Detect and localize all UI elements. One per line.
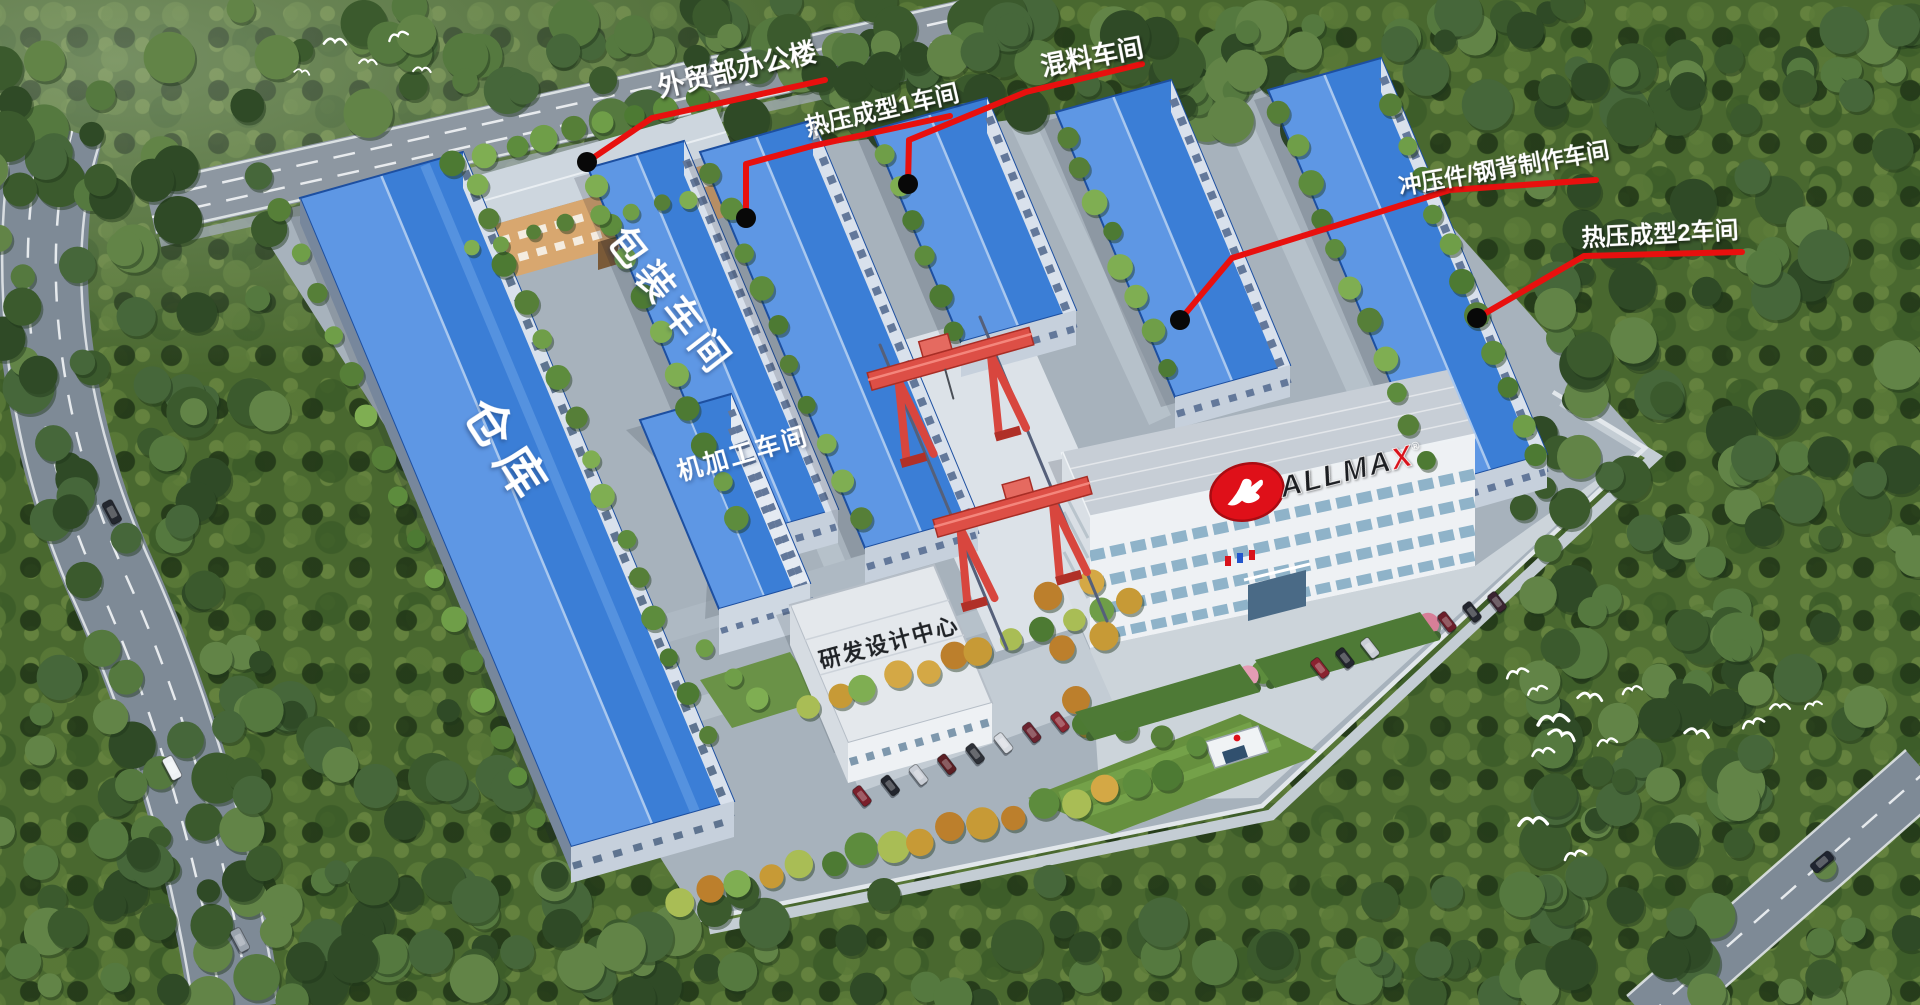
tree [556,214,573,231]
tree [1844,685,1886,727]
tree [822,851,847,876]
tree [107,231,142,266]
tree [1519,660,1560,701]
tree [1069,931,1100,962]
tree [134,366,171,403]
tree [1398,414,1419,435]
tree [723,870,750,897]
tree [425,569,444,588]
tree [1557,435,1601,479]
tree [1423,205,1442,224]
tree [131,159,174,202]
tree [88,819,128,859]
tree [817,434,837,454]
tree [1872,128,1914,170]
tree [618,530,637,549]
tree [1050,911,1078,939]
tree [1730,104,1761,135]
tree [1541,628,1579,666]
tree [493,236,509,252]
tree [86,80,116,110]
tree [1431,876,1463,908]
tree [399,71,428,100]
tree [1091,775,1119,803]
tree [1124,285,1147,308]
tree [623,204,640,221]
callout-dot-mixing [898,174,918,194]
tree [865,51,904,90]
tree [1033,865,1066,898]
callout-dot-hot-press-2 [1467,308,1487,328]
tree [780,355,798,373]
tree [1778,979,1803,1004]
tree [1123,769,1152,798]
tree [1361,882,1399,920]
tree [24,40,65,81]
tree [79,122,104,147]
tree [117,297,156,336]
tree [660,648,678,666]
tree [614,15,653,54]
tree [93,888,126,921]
tree [1533,773,1577,817]
tree [696,639,714,657]
tree [180,398,207,425]
tree [530,125,558,153]
tree [1805,959,1842,996]
tree [769,315,789,335]
tree [590,205,610,225]
tree [1029,788,1060,819]
tree [526,808,546,828]
tree [1325,239,1344,258]
tree [1510,494,1536,520]
tree [1782,70,1817,105]
bird-icon [1578,692,1603,700]
tree [589,66,617,94]
tree [508,767,527,786]
tree [260,915,292,947]
tree [1236,20,1260,44]
bird-icon [1622,685,1642,694]
tree [327,932,378,983]
tree [467,174,489,196]
tree [1571,63,1609,101]
tree [1507,12,1544,49]
tree [167,722,204,759]
tree [492,252,517,277]
tree [1357,308,1382,333]
tree [100,963,130,993]
tree [590,484,614,508]
tree [699,163,720,184]
tree [878,831,910,863]
tree [70,350,95,375]
tree [1151,725,1173,747]
tree [1839,58,1862,81]
tree [1607,98,1656,147]
tree [699,726,717,744]
tree [1256,931,1292,967]
tree [343,88,392,137]
tree [1645,767,1679,801]
tree [514,290,539,315]
tree [1387,383,1407,403]
tree [464,240,480,256]
tree [696,875,724,903]
tree [115,769,147,801]
tree [1049,635,1075,661]
tree [441,606,467,632]
tree [1207,97,1254,144]
tree [246,846,282,882]
tree [596,922,645,971]
tree [1717,779,1759,821]
tree [1063,609,1086,632]
tree [1116,588,1143,615]
callout-dot-hot-press-1 [736,208,756,228]
tree [1440,233,1462,255]
tree [561,116,586,141]
tree [19,356,58,395]
tree [796,695,820,719]
tree [1892,915,1920,951]
tree [1225,49,1267,91]
tree [831,470,854,493]
tree [961,32,1000,71]
tree [906,829,934,857]
tree [1650,381,1683,414]
tree [1752,389,1799,436]
tree [546,34,580,68]
tree [935,812,964,841]
tree [566,406,588,428]
tree [1481,341,1505,365]
tree [245,286,270,311]
tree [759,864,783,888]
tree [1670,72,1706,108]
tree [995,13,1028,46]
tree [245,162,272,189]
tree [1103,222,1122,241]
tree [165,505,199,539]
tree [1608,263,1655,310]
tree [1449,269,1474,294]
tree [1774,475,1823,524]
tree [470,688,495,713]
tree [506,72,538,104]
tree [1082,190,1108,216]
tree [665,363,689,387]
tree [478,208,499,229]
tree [1299,170,1324,195]
tree [1417,451,1436,470]
tree [884,660,912,688]
tree [1462,79,1513,130]
tree [1608,888,1644,924]
tree [452,876,499,923]
tree [848,675,876,703]
callout-label-hot-press-2: 热压成型2车间 [1581,216,1740,252]
tree [1647,937,1689,979]
tree [1810,612,1840,642]
tree [230,89,264,123]
tree [1158,359,1176,377]
tree [407,530,426,549]
tree [1610,58,1639,87]
tree [1284,31,1322,69]
tree [25,735,55,765]
tree [1186,736,1207,757]
tree [450,954,499,1003]
tree [1734,159,1770,195]
tree [144,32,195,83]
tree [190,904,233,947]
tree [1692,277,1721,306]
tree [23,845,58,880]
tree [675,396,700,421]
tree [1714,44,1743,73]
scene-svg: ALLMAX® [0,0,1920,1005]
tree [875,144,895,164]
tree [1723,828,1753,858]
tree [1267,101,1290,124]
tree [233,776,271,814]
tree [426,760,467,801]
tree [734,243,754,263]
tree [1663,515,1690,542]
tree [1627,514,1664,551]
tree [185,571,224,610]
tree [93,699,128,734]
tree [917,660,941,684]
tree [307,283,327,303]
tree [37,655,83,701]
tree [126,837,159,870]
tree [1057,127,1079,149]
tree [507,136,529,158]
tree [1695,546,1726,577]
tree [845,832,878,865]
tree [1138,897,1188,947]
tree [1107,254,1133,280]
tree [65,562,101,598]
tree [35,425,71,461]
tree [1034,582,1062,610]
tree [1598,703,1639,744]
tree [1610,317,1656,363]
tree [1582,756,1612,786]
tree [3,288,41,326]
tree [1498,377,1519,398]
tree [11,264,35,288]
tree [665,888,694,917]
tree [292,243,311,262]
tree [472,143,497,168]
tree [1089,621,1118,650]
tree [629,567,650,588]
tree [1499,871,1545,917]
tree [490,726,514,750]
tree [1524,444,1546,466]
tree [1798,229,1850,281]
tree [966,807,998,839]
tree [1513,415,1536,438]
tree [1878,5,1920,47]
tree [439,150,465,176]
tree [176,292,217,333]
tree [915,245,935,265]
tree [48,908,88,948]
tree [1398,137,1417,156]
tree [149,435,185,471]
tree [340,362,364,386]
tree [654,194,670,210]
tree [354,764,398,808]
tree [679,191,697,209]
tree [249,651,272,674]
tree [1062,789,1091,818]
tree [5,943,41,979]
tree [541,862,568,889]
factory-aerial-rendering: ALLMAX® [0,0,1920,1005]
tree [408,929,453,974]
tree [1666,907,1695,936]
tree [325,326,343,344]
tree [1737,735,1773,771]
bird-icon [1770,704,1790,709]
tree [185,803,223,841]
tree [1379,93,1402,116]
tree [1729,639,1751,661]
tree [717,24,741,48]
tree [542,909,581,948]
tree [1028,979,1063,1005]
tree [111,523,142,554]
tree [437,699,460,722]
tree [157,974,189,1005]
tree [500,935,534,969]
tree [1746,249,1782,285]
tree [1846,970,1890,1005]
tree [1807,436,1848,477]
tree [1638,698,1680,740]
tree [388,486,408,506]
tree [1534,288,1576,330]
tree [1565,856,1606,897]
tree [526,225,541,240]
tree [267,198,291,222]
tree [902,210,922,230]
tree [83,630,120,667]
tree [249,391,290,432]
tree [84,164,116,196]
tree [991,920,1042,971]
tree [349,857,398,906]
tree [1655,823,1699,867]
tree [746,687,769,710]
tree [677,682,700,705]
tree [1852,462,1887,497]
tree [963,637,992,666]
tree [1192,940,1237,985]
tree [582,450,600,468]
tree [1151,760,1182,791]
tree [200,642,233,675]
tree [532,329,552,349]
tree [546,365,571,390]
tree [396,15,436,55]
tree [233,954,280,1001]
tree [1578,597,1607,626]
tree [38,973,62,997]
tree [53,494,88,529]
tree [1029,617,1054,642]
tree [139,903,176,940]
tree [1666,609,1708,651]
tree [372,446,397,471]
tree [1434,30,1456,52]
tree [718,952,757,991]
tree [461,650,484,673]
tree [29,703,52,726]
tree [1534,535,1561,562]
tree [1142,319,1166,343]
tree [286,942,325,981]
tree [1707,689,1745,727]
tree [355,404,378,427]
tree [1415,941,1452,978]
bird-icon [324,39,346,45]
tree [1338,277,1361,300]
tree [585,175,608,198]
tree [867,878,900,911]
tree [1839,78,1873,112]
tree [724,506,749,531]
tree [850,973,884,1005]
tree [1818,526,1842,550]
tree [322,747,358,783]
tree [1745,508,1783,546]
tree [1538,74,1570,106]
tree [452,68,478,94]
tree [212,710,245,743]
tree [724,668,742,686]
tree [1820,6,1868,54]
tree [1612,768,1636,792]
tree [929,284,952,307]
tree [750,276,775,301]
tree [197,879,220,902]
callout-dot-office [577,152,597,172]
tree [1731,435,1776,480]
tree [325,860,349,884]
tree [592,111,614,133]
tree [59,247,96,284]
tree [1069,157,1090,178]
tree [798,396,816,414]
tree [1779,441,1811,473]
bird-icon [359,59,377,64]
tree [1519,576,1556,613]
tree [1773,654,1822,703]
tree [641,606,665,630]
tree [1806,928,1834,956]
tree [1355,937,1382,964]
callout-dot-stamping [1170,310,1190,330]
tree [694,954,722,982]
tree [1373,347,1398,372]
